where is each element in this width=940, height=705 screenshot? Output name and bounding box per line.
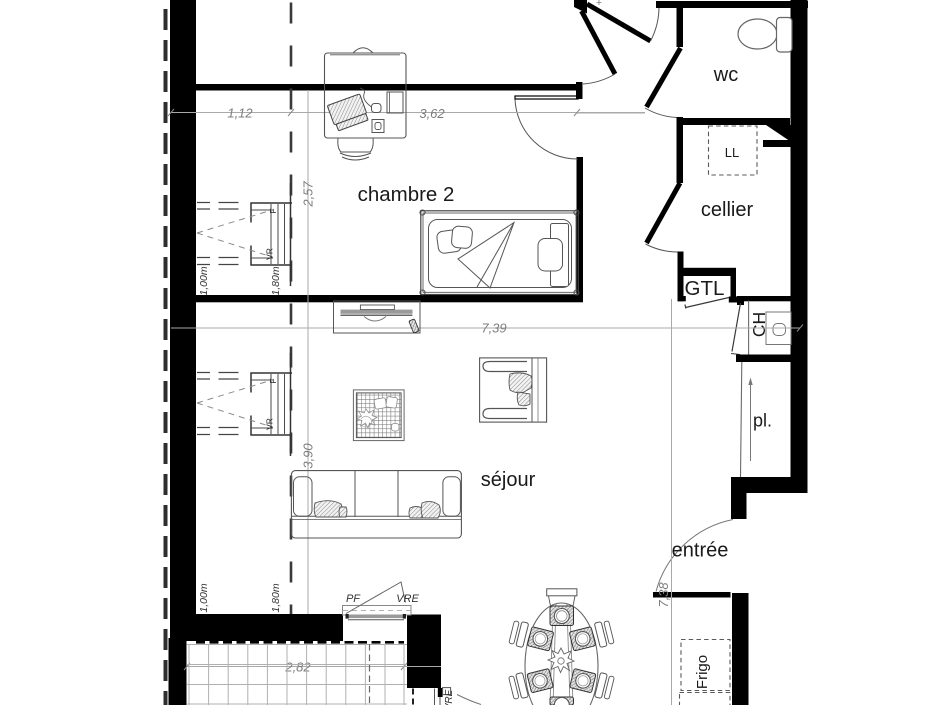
svg-text:cellier: cellier <box>701 199 754 221</box>
svg-text:2,82: 2,82 <box>284 660 311 675</box>
svg-text:wc: wc <box>713 64 738 86</box>
svg-text:Frigo: Frigo <box>694 655 711 689</box>
svg-text:7,39: 7,39 <box>481 321 506 336</box>
svg-text:pl.: pl. <box>753 411 772 431</box>
svg-text:GTL: GTL <box>685 277 725 300</box>
svg-text:3,62: 3,62 <box>419 106 445 121</box>
svg-text:VR: VR <box>265 418 275 430</box>
svg-text:LL: LL <box>725 145 739 160</box>
svg-text:chambre 2: chambre 2 <box>358 183 455 206</box>
svg-text:2,57: 2,57 <box>301 181 316 208</box>
svg-text:VRE: VRE <box>444 689 455 705</box>
svg-text:1,12: 1,12 <box>227 106 253 121</box>
svg-text:7,38: 7,38 <box>656 582 671 608</box>
svg-text:VR: VR <box>265 248 275 260</box>
svg-text:séjour: séjour <box>481 469 536 491</box>
svg-text:1,80m: 1,80m <box>270 583 282 612</box>
svg-text:1,00m: 1,00m <box>198 583 210 612</box>
svg-text:VRE: VRE <box>396 593 419 605</box>
svg-text:3,90: 3,90 <box>301 443 316 469</box>
svg-text:entrée: entrée <box>672 540 729 562</box>
svg-text:F: F <box>268 208 278 213</box>
svg-text:1,80m: 1,80m <box>270 266 282 295</box>
svg-text:F: F <box>268 378 278 383</box>
svg-text:PF: PF <box>346 593 361 605</box>
svg-text:1,00m: 1,00m <box>198 266 210 295</box>
